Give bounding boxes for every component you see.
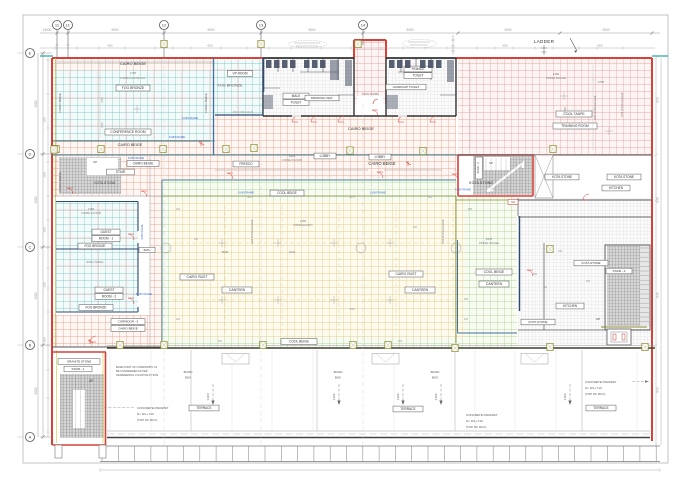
svg-text:CAIRO BEIGE: CAIRO BEIGE: [118, 327, 138, 331]
svg-text:FINISH FLOOR LVL: FINISH FLOOR LVL: [120, 76, 146, 80]
svg-text:STAIR: STAIR: [116, 170, 126, 174]
svg-text:COOL BEIGE: COOL BEIGE: [289, 340, 309, 344]
svg-text:CAIRO RUST: CAIRO RUST: [396, 272, 417, 276]
svg-text:CONCRETE PARAPET: CONCRETE PARAPET: [137, 406, 169, 410]
svg-text:SUB FRAME: SUB FRAME: [455, 188, 471, 192]
svg-text:1875: 1875: [349, 196, 355, 199]
svg-text:BE CONSIDERED AS PER: BE CONSIDERED AS PER: [116, 369, 148, 373]
svg-text:CAIRO BEIGE: CAIRO BEIGE: [120, 61, 146, 66]
svg-text:196: 196: [176, 208, 181, 211]
svg-text:1500: 1500: [44, 117, 47, 123]
svg-text:485: 485: [586, 280, 591, 283]
svg-text:485: 485: [468, 208, 473, 211]
svg-text:4500: 4500: [597, 45, 603, 48]
svg-text:FINISH FLOOR: FINISH FLOOR: [282, 158, 302, 162]
svg-text:ROOM - 2: ROOM - 2: [102, 295, 117, 299]
svg-text:HANDICAP TOILET: HANDICAP TOILET: [393, 85, 420, 89]
svg-text:KOTA STONE: KOTA STONE: [582, 261, 601, 265]
svg-text:KOTA STONE: KOTA STONE: [94, 181, 116, 185]
svg-text:VP ROOM: VP ROOM: [233, 72, 248, 76]
svg-text:KITCHEN: KITCHEN: [563, 304, 578, 308]
svg-text:KITCHEN: KITCHEN: [609, 186, 624, 190]
svg-text:UP: UP: [93, 160, 97, 164]
svg-text:302: 302: [398, 340, 403, 343]
svg-text:(TOP OF RCC): (TOP OF RCC): [137, 418, 157, 422]
svg-text:9000: 9000: [34, 292, 38, 299]
svg-text:FOG BRONZE: FOG BRONZE: [122, 86, 145, 90]
svg-text:CANTEEN: CANTEEN: [229, 288, 246, 292]
svg-text:12: 12: [162, 23, 167, 28]
svg-text:GUEST: GUEST: [101, 230, 112, 234]
svg-text:ROOM - 1: ROOM - 1: [99, 237, 114, 241]
svg-text:SUB FRAME: SUB FRAME: [140, 224, 144, 239]
svg-text:LOBBY: LOBBY: [375, 155, 387, 159]
svg-text:485: 485: [464, 298, 469, 301]
svg-text:CAIRO BEIGE: CAIRO BEIGE: [348, 126, 374, 131]
svg-text:11': 11': [66, 23, 71, 28]
svg-text:CAIRO BEIGE: CAIRO BEIGE: [58, 172, 62, 192]
svg-text:MALE: MALE: [292, 94, 301, 98]
svg-text:KOTA STONE: KOTA STONE: [469, 181, 493, 185]
svg-text:4500: 4500: [502, 45, 508, 48]
svg-text:FOG BRONZE: FOG BRONZE: [84, 244, 105, 248]
svg-text:TERRACE: TERRACE: [196, 406, 211, 410]
svg-text:302: 302: [428, 196, 433, 199]
svg-text:4678: 4678: [247, 196, 253, 199]
svg-text:1:100: 1:100: [332, 393, 336, 400]
svg-text:CAIRO RUST: CAIRO RUST: [187, 275, 208, 279]
svg-text:7155 FINISH GAUGE: 7155 FINISH GAUGE: [441, 219, 445, 244]
svg-text:FRESCO: FRESCO: [239, 162, 253, 166]
svg-text:BATH: BATH: [144, 248, 151, 252]
svg-text:196: 196: [176, 318, 181, 321]
svg-text:CAIRO BEIGE: CAIRO BEIGE: [118, 143, 143, 147]
svg-text:CANTEEN: CANTEEN: [412, 288, 429, 292]
svg-text:GRANITE STONE: GRANITE STONE: [67, 360, 91, 364]
svg-text:9000: 9000: [656, 97, 660, 103]
svg-text:1830: 1830: [101, 122, 104, 128]
svg-text:FINISH GAUGE: FINISH GAUGE: [479, 241, 499, 245]
svg-text:1:100: 1:100: [563, 393, 567, 400]
svg-text:1756: 1756: [130, 71, 137, 75]
svg-text:UP: UP: [596, 317, 600, 321]
svg-text:KOTA STONE: KOTA STONE: [529, 320, 548, 324]
svg-text:BLIND: BLIND: [334, 370, 344, 374]
svg-text:5525: 5525: [222, 250, 229, 254]
svg-text:14930: 14930: [43, 28, 52, 32]
svg-text:9000: 9000: [111, 28, 118, 32]
svg-text:9000: 9000: [34, 196, 38, 203]
svg-text:1500: 1500: [44, 337, 47, 343]
svg-text:7155 FINISH GAUGE: 7155 FINISH GAUGE: [593, 95, 597, 120]
svg-text:FINISH(CONT): FINISH(CONT): [294, 223, 313, 227]
svg-text:1:100: 1:100: [434, 393, 438, 400]
svg-text:1:100: 1:100: [396, 393, 400, 400]
svg-text:SUB FRAME: SUB FRAME: [238, 191, 254, 195]
svg-text:STAIR - 4: STAIR - 4: [613, 269, 626, 273]
svg-text:LOBBY: LOBBY: [320, 154, 332, 158]
svg-text:CAIRO BEIGE: CAIRO BEIGE: [58, 93, 62, 113]
svg-text:9000: 9000: [34, 100, 38, 107]
svg-text:430: 430: [464, 318, 469, 321]
svg-text:SUB FRAME: SUB FRAME: [136, 292, 152, 296]
svg-text:DRINKING WAT.: DRINKING WAT.: [311, 96, 333, 100]
svg-text:TOILET: TOILET: [412, 74, 423, 78]
svg-text:CONFERENCE ROOM: CONFERENCE ROOM: [110, 130, 145, 134]
svg-text:9000: 9000: [207, 28, 214, 32]
svg-text:SUB FRAME: SUB FRAME: [128, 156, 144, 160]
svg-text:LADDER: LADDER: [534, 39, 555, 44]
svg-text:H= 1FL+710: H= 1FL+710: [137, 412, 154, 416]
svg-text:9000: 9000: [34, 387, 38, 394]
svg-text:4500: 4500: [207, 45, 213, 48]
svg-text:9000: 9000: [504, 28, 511, 32]
svg-text:9000: 9000: [406, 28, 413, 32]
svg-text:COOL BEIGE: COOL BEIGE: [277, 191, 297, 195]
svg-text:TERRACE: TERRACE: [400, 407, 415, 411]
svg-text:E: E: [29, 51, 32, 56]
svg-text:H= 1FL+710: H= 1FL+710: [466, 419, 483, 423]
svg-text:STAIR - 1: STAIR - 1: [72, 367, 85, 371]
svg-text:CANTEEN: CANTEEN: [486, 282, 503, 286]
svg-text:CORRIDOR - 5: CORRIDOR - 5: [118, 320, 139, 324]
svg-text:9424 (7155A): 9424 (7155A): [87, 260, 104, 264]
svg-text:1500: 1500: [44, 227, 47, 233]
svg-text:1500: 1500: [44, 172, 47, 178]
svg-text:(TOP OF RCC): (TOP OF RCC): [466, 425, 486, 429]
svg-text:302: 302: [218, 340, 223, 343]
svg-text:7155 FINISH GAUGE: 7155 FINISH GAUGE: [250, 219, 254, 244]
svg-text:3904 (7155+GD+5): 3904 (7155+GD+5): [233, 111, 254, 114]
svg-text:FOG BRONZE: FOG BRONZE: [217, 84, 243, 88]
svg-text:150: 150: [413, 226, 418, 229]
svg-text:SUB FRAME: SUB FRAME: [182, 116, 198, 120]
svg-text:BOX: BOX: [432, 376, 438, 380]
svg-text:302: 302: [511, 201, 516, 204]
svg-text:9000: 9000: [602, 28, 609, 32]
svg-text:TRAINING ROOM: TRAINING ROOM: [561, 124, 589, 128]
svg-text:CAIRO BEIGE: CAIRO BEIGE: [133, 162, 154, 166]
svg-text:COOL BEIGE: COOL BEIGE: [484, 270, 506, 274]
svg-text:FINISH FLOOR: FINISH FLOOR: [81, 211, 101, 215]
svg-text:7155 FINISH GAUGE: 7155 FINISH GAUGE: [620, 92, 624, 117]
svg-text:BOX: BOX: [335, 376, 341, 380]
svg-text:C: C: [29, 245, 32, 250]
svg-text:9000: 9000: [656, 292, 660, 298]
svg-text:CONCRETE PARAPET: CONCRETE PARAPET: [585, 380, 617, 384]
svg-text:13: 13: [259, 23, 264, 28]
svg-text:4500: 4500: [107, 45, 113, 48]
svg-text:BOX: BOX: [185, 376, 191, 380]
svg-text:1:100: 1:100: [206, 393, 210, 400]
svg-text:KOTA STONE: KOTA STONE: [614, 175, 634, 179]
svg-text:CONCRETE PARAPET: CONCRETE PARAPET: [466, 413, 498, 417]
svg-text:2285: 2285: [101, 97, 104, 103]
svg-text:BLIND: BLIND: [184, 370, 194, 374]
svg-text:SUB FRAME: SUB FRAME: [370, 191, 386, 195]
svg-text:430: 430: [543, 286, 548, 289]
svg-text:B: B: [29, 343, 32, 348]
svg-text:3434: 3434: [289, 250, 296, 254]
svg-text:CAIRO BEIGE: CAIRO BEIGE: [204, 93, 208, 113]
svg-text:(TOP OF RCC): (TOP OF RCC): [585, 392, 605, 396]
svg-text:485: 485: [533, 273, 538, 276]
svg-text:7155: 7155: [563, 107, 567, 113]
svg-text:14: 14: [361, 23, 366, 28]
svg-text:9000: 9000: [308, 28, 315, 32]
svg-text:BLIND: BLIND: [431, 370, 441, 374]
svg-text:TOILET: TOILET: [290, 101, 301, 105]
svg-text:FINISH GAUGE: FINISH GAUGE: [546, 76, 566, 80]
svg-text:A: A: [29, 435, 32, 440]
svg-text:3050: 3050: [349, 308, 355, 311]
svg-text:COOL TAUPE: COOL TAUPE: [362, 92, 379, 96]
svg-text:CAIRO BEIGE: CAIRO BEIGE: [368, 161, 395, 166]
svg-text:BASE POINT OF CORRIDOR'S TO: BASE POINT OF CORRIDOR'S TO: [116, 365, 157, 369]
svg-text:9000: 9000: [656, 387, 660, 393]
svg-text:4756: 4756: [598, 80, 605, 84]
svg-text:485: 485: [558, 250, 563, 253]
svg-text:GUEST: GUEST: [104, 288, 115, 292]
svg-text:FOG BRONZE: FOG BRONZE: [85, 306, 106, 310]
svg-text:9000: 9000: [656, 197, 660, 203]
svg-text:KOTA STONE: KOTA STONE: [552, 175, 572, 179]
svg-text:300: 300: [194, 238, 199, 241]
svg-text:TERRACE: TERRACE: [593, 406, 608, 410]
svg-text:H= 1FL+710: H= 1FL+710: [585, 386, 602, 390]
svg-text:INCREMENTAL LOCATION AT SITE: INCREMENTAL LOCATION AT SITE: [116, 373, 158, 377]
svg-text:D: D: [29, 152, 32, 157]
svg-text:1500: 1500: [44, 282, 47, 288]
svg-text:STAIR - 3: STAIR - 3: [476, 162, 480, 174]
svg-text:SUB FRAME: SUB FRAME: [169, 135, 185, 139]
svg-text:UP: UP: [89, 379, 93, 383]
